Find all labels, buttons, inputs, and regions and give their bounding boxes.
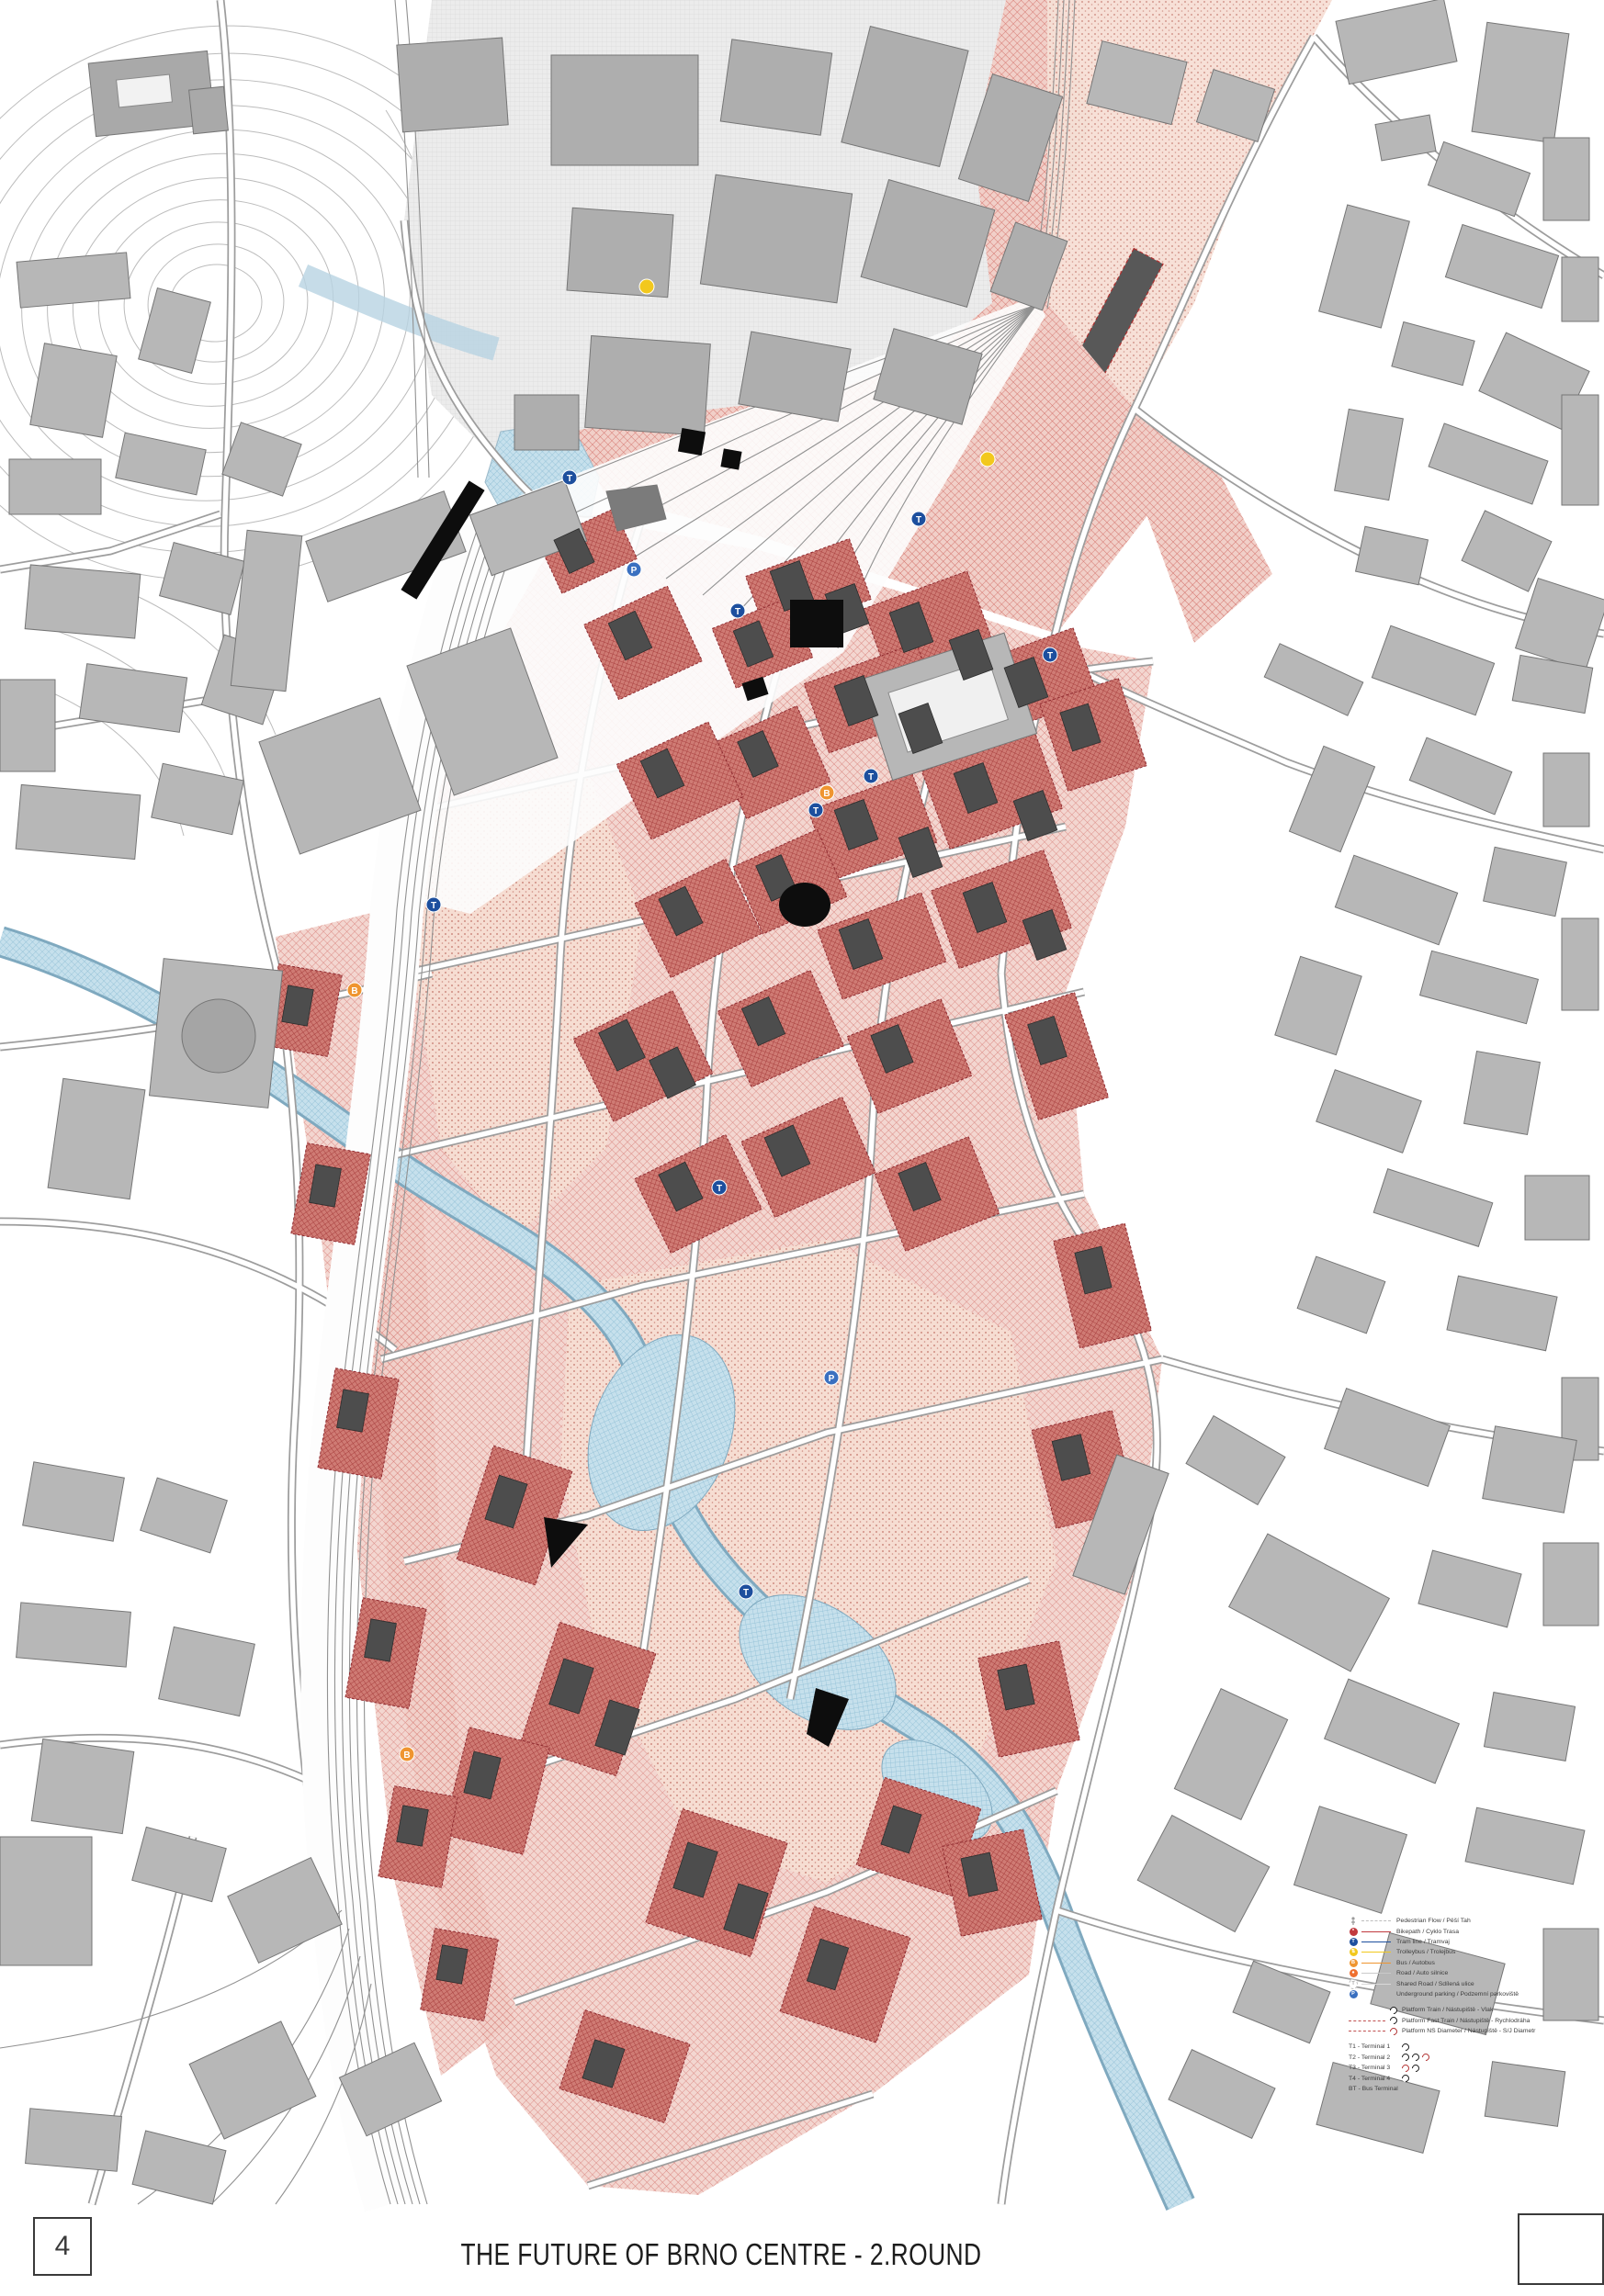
poster-page: T T T T T T T T T B B B P P Pedestri [0, 0, 1604, 2296]
page-number: 4 [55, 2231, 71, 2262]
road-icon: ● [1349, 1969, 1358, 1978]
svg-text:B: B [823, 789, 830, 799]
svg-text:T: T [431, 901, 436, 911]
svg-text:P: P [829, 1374, 835, 1384]
svg-text:T: T [567, 474, 572, 484]
svg-text:T: T [868, 772, 874, 782]
svg-text:T: T [743, 1588, 749, 1598]
terminal-arc-icon [1410, 2063, 1420, 2073]
page-number-box: 4 [33, 2217, 92, 2276]
terminal-arc-icon [1400, 2073, 1410, 2083]
trolleybus-icon: ⇅ [1349, 1948, 1358, 1957]
legend-item-platform-train: Platform Train / Nástupiště - Vlak [1349, 2005, 1560, 2015]
corner-box [1518, 2213, 1604, 2285]
legend-item-terminal-1: T1 - Terminal 1 [1349, 2042, 1560, 2052]
svg-text:T: T [735, 607, 740, 617]
legend-item-bikepath: º Bikepath / Cyklo Trasa [1349, 1926, 1560, 1936]
svg-text:P: P [631, 566, 638, 576]
legend-item-platform-ns: Platform NS Diameter / Nástupiště - S/J … [1349, 2026, 1560, 2036]
legend-item-bus-terminal: BT - Bus Terminal [1349, 2084, 1560, 2094]
legend-item-platform-fast-train: Platform Fast Train / Nástupiště - Rychl… [1349, 2016, 1560, 2026]
svg-text:T: T [717, 1184, 722, 1194]
terminal-arc-icon [1400, 2063, 1410, 2073]
legend-item-terminal-3: T3 - Terminal 3 [1349, 2063, 1560, 2073]
legend-item-shared-road: T Shared Road / Sdílená ulice [1349, 1978, 1560, 1988]
platform-fast-train-icon [1389, 2016, 1398, 2025]
terminal-arc-icon [1400, 2053, 1410, 2063]
bus-icon: B [1349, 1958, 1358, 1967]
platform-train-icon [1389, 2006, 1398, 2015]
poster-title: THE FUTURE OF BRNO CENTRE - 2.ROUND [144, 2237, 1298, 2272]
svg-text:T: T [1047, 651, 1053, 661]
bike-icon: º [1349, 1927, 1358, 1936]
svg-text:T: T [916, 515, 921, 525]
legend-item-parking: P Underground parking / Podzemní parkovi… [1349, 1989, 1560, 1999]
legend-item-terminal-4: T4 - Terminal 4 [1349, 2073, 1560, 2083]
legend-item-terminal-2: T2 - Terminal 2 [1349, 2053, 1560, 2063]
svg-text:B: B [351, 986, 357, 996]
platform-ns-icon [1389, 2027, 1398, 2036]
svg-text:B: B [403, 1750, 410, 1761]
pedestrian-icon [1349, 1917, 1358, 1926]
legend-item-pedestrian: Pedestrian Flow / Pěší Tah [1349, 1916, 1560, 1926]
shared-road-icon: T [1349, 1979, 1358, 1988]
map-legend: Pedestrian Flow / Pěší Tah º Bikepath / … [1349, 1916, 1560, 2094]
terminal-arc-icon [1410, 2053, 1420, 2063]
svg-text:T: T [813, 806, 819, 816]
tram-icon: T [1349, 1937, 1358, 1946]
parking-icon: P [1349, 1989, 1358, 1998]
terminal-arc-icon [1420, 2053, 1430, 2063]
legend-item-trolleybus: ⇅ Trolleybus / Trolejbus [1349, 1947, 1560, 1957]
legend-item-road: ● Road / Auto silnice [1349, 1968, 1560, 1978]
legend-item-bus: B Bus / Autobus [1349, 1958, 1560, 1968]
legend-item-tram: T Tram line / Tramvaj [1349, 1937, 1560, 1947]
terminal-arc-icon [1400, 2042, 1410, 2052]
